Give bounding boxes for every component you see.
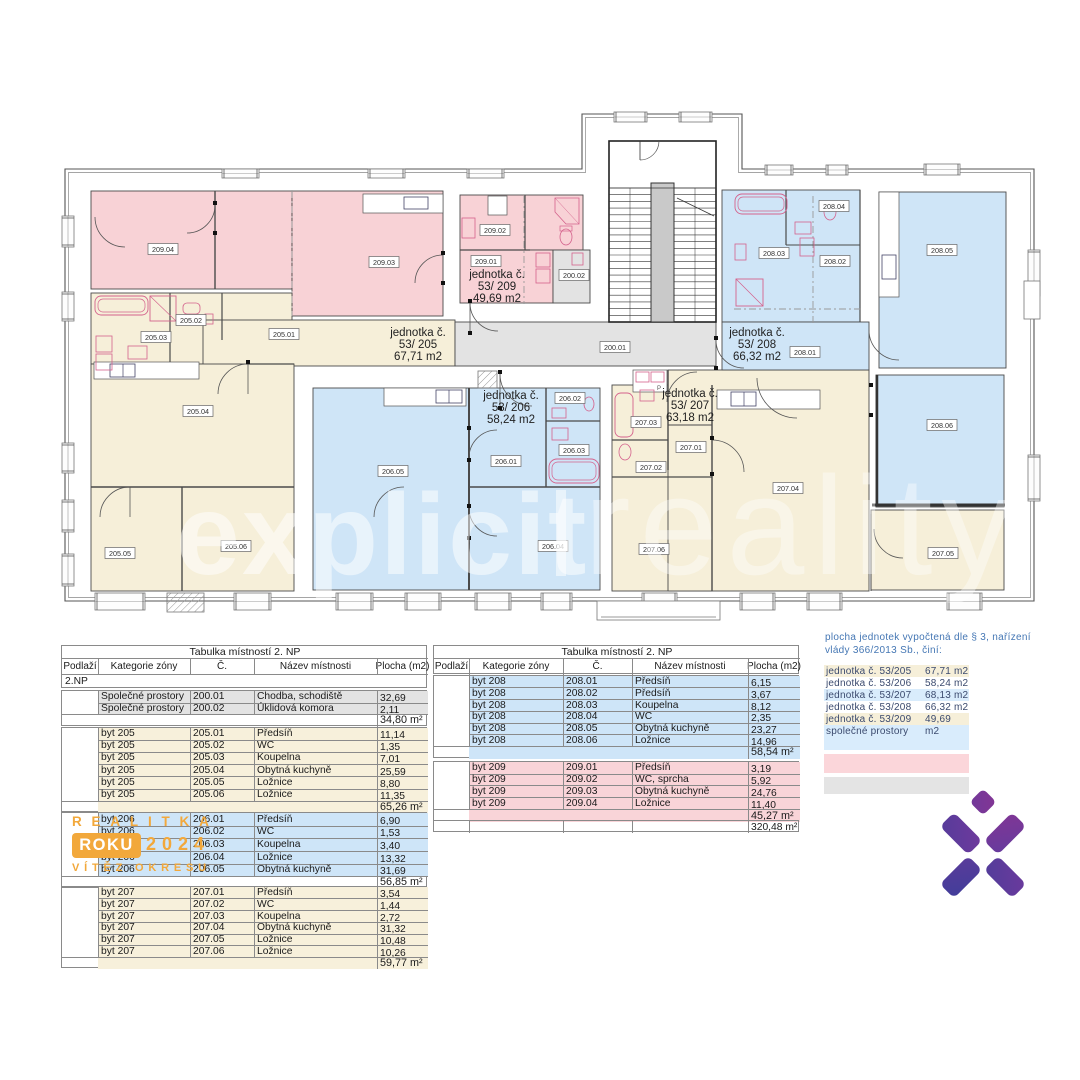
svg-text:206.01: 206.01	[495, 457, 517, 466]
svg-text:reality: reality	[584, 447, 1020, 604]
svg-text:53/ 207: 53/ 207	[671, 400, 709, 412]
svg-text:206.02: 206.02	[559, 394, 581, 403]
svg-text:P: P	[657, 386, 661, 392]
svg-text:209.03: 209.03	[373, 258, 395, 267]
svg-text:207.03: 207.03	[635, 418, 657, 427]
svg-text:jednotka č.: jednotka č.	[728, 327, 785, 339]
svg-text:66,32 m2: 66,32 m2	[733, 351, 781, 363]
svg-text:53/ 205: 53/ 205	[399, 339, 437, 351]
svg-text:205.01: 205.01	[273, 330, 295, 339]
svg-text:58,24 m2: 58,24 m2	[487, 414, 535, 426]
svg-text:63,18 m2: 63,18 m2	[666, 412, 714, 424]
svg-text:208.02: 208.02	[824, 257, 846, 266]
svg-text:205.03: 205.03	[145, 333, 167, 342]
svg-text:jednotka č.: jednotka č.	[482, 390, 539, 402]
svg-text:200.02: 200.02	[563, 271, 585, 280]
svg-text:200.01: 200.01	[604, 343, 626, 352]
svg-text:209.02: 209.02	[484, 226, 506, 235]
svg-text:53/ 206: 53/ 206	[492, 402, 530, 414]
svg-text:208.03: 208.03	[763, 249, 785, 258]
svg-text:208.06: 208.06	[931, 421, 953, 430]
svg-text:53/ 209: 53/ 209	[478, 281, 516, 293]
svg-text:jednotka č.: jednotka č.	[661, 388, 718, 400]
svg-text:208.05: 208.05	[931, 246, 953, 255]
svg-text:jednotka č.: jednotka č.	[389, 327, 446, 339]
svg-text:53/ 208: 53/ 208	[738, 339, 776, 351]
svg-text:209.01: 209.01	[475, 257, 497, 266]
svg-text:205.04: 205.04	[187, 407, 209, 416]
svg-text:jednotka č.: jednotka č.	[468, 269, 525, 281]
svg-text:49,69 m2: 49,69 m2	[473, 293, 521, 305]
svg-text:205.05: 205.05	[109, 549, 131, 558]
svg-text:209.04: 209.04	[152, 245, 174, 254]
svg-text:205.02: 205.02	[180, 316, 202, 325]
svg-text:67,71 m2: 67,71 m2	[394, 351, 442, 363]
svg-text:206.03: 206.03	[563, 446, 585, 455]
svg-text:208.01: 208.01	[794, 348, 816, 357]
svg-text:explicit: explicit	[176, 471, 588, 599]
svg-text:208.04: 208.04	[823, 202, 845, 211]
